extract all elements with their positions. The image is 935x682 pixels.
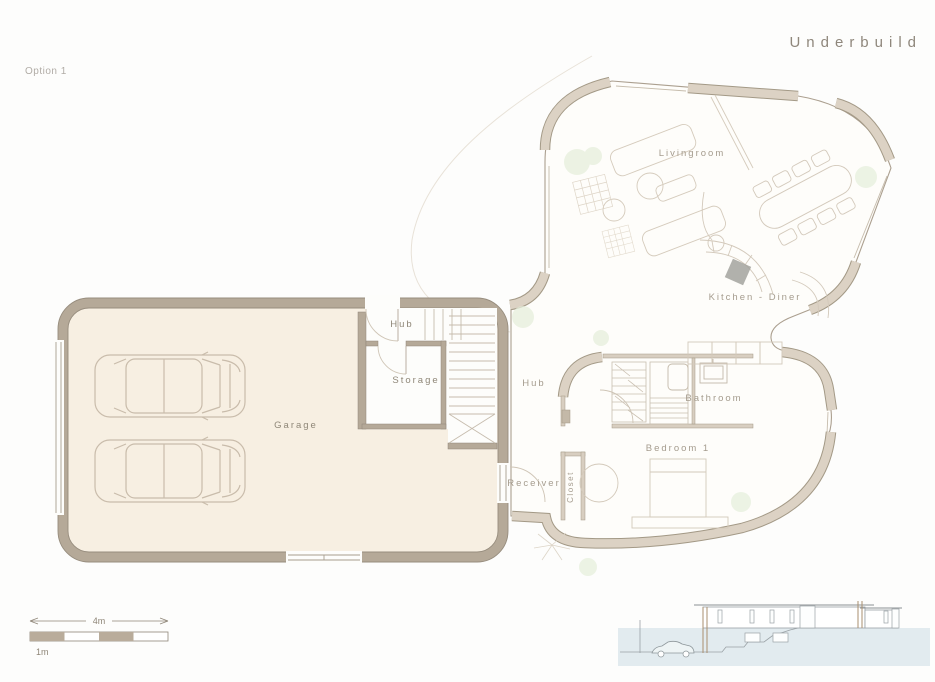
wall-pier [562, 410, 570, 423]
kitchen-diner-label: Kitchen - Diner [709, 292, 802, 303]
scale-segment-1 [30, 632, 65, 641]
scale-segment-3 [99, 632, 134, 641]
house-body [703, 607, 865, 628]
bedroom-label: Bedroom 1 [646, 443, 710, 454]
garage-door [286, 551, 362, 564]
hub-lower-label: Hub [390, 319, 413, 330]
scale-unit-label: 1m [36, 647, 49, 657]
scale-total-label: 4m [93, 616, 106, 626]
garage-window-left [53, 340, 64, 515]
bathroom-label: Bathroom [685, 393, 742, 404]
hub-upper-label: Hub [522, 378, 545, 389]
floorplan-sheet: Garage Hub Storage Hub Livingroom Kitche… [0, 0, 935, 682]
sheet-title: Underbuild [789, 34, 922, 51]
livingroom-label: Livingroom [659, 148, 725, 159]
closet-label: Closet [566, 471, 575, 503]
garage-label: Garage [274, 420, 318, 431]
car-wheel-rear [658, 651, 664, 657]
car-wheel-front [683, 651, 689, 657]
floorplan-drawing: Garage Hub Storage Hub Livingroom Kitche… [0, 0, 935, 682]
receiver-label: Receiver [507, 478, 561, 489]
option-label: Option 1 [25, 66, 67, 77]
storage-label: Storage [392, 375, 439, 386]
